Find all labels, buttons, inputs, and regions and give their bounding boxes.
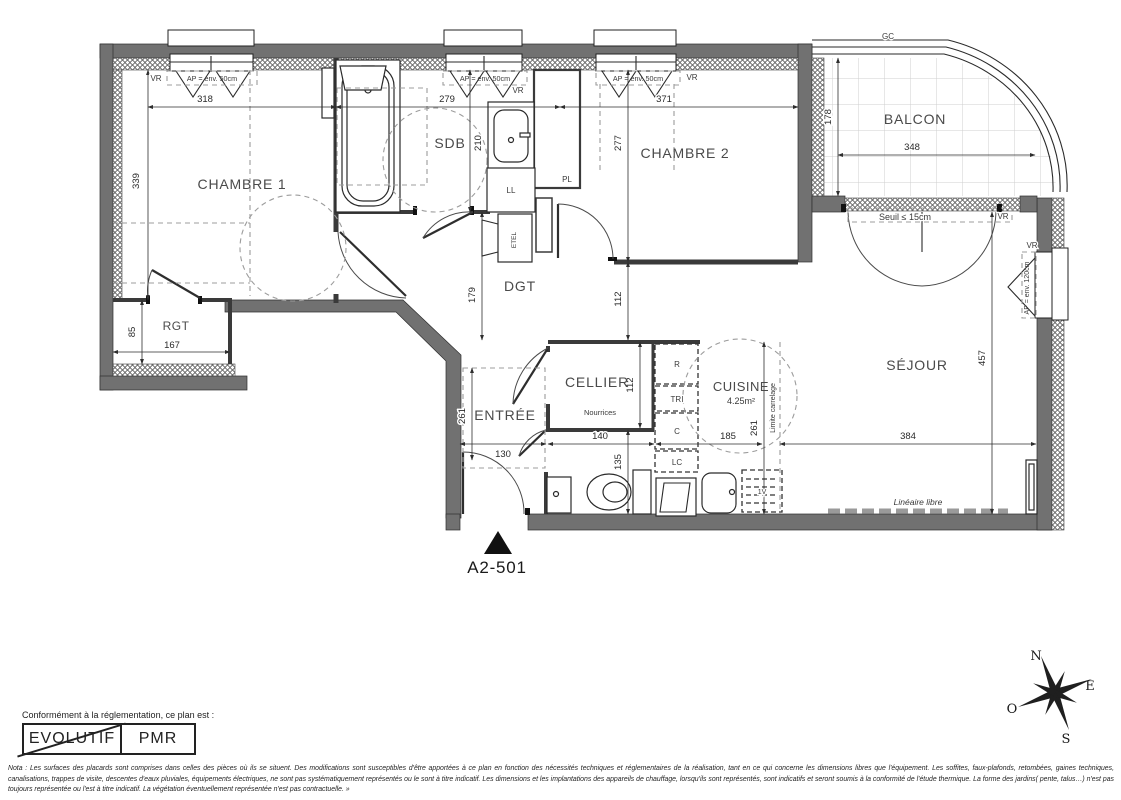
unit-tri-label: TRI xyxy=(671,395,684,404)
room-label-dgt: DGT xyxy=(504,278,536,294)
room-label-chambre2: CHAMBRE 2 xyxy=(641,145,730,161)
dim: 178 xyxy=(823,109,834,125)
bath-shelf xyxy=(340,66,386,90)
floor-plan-canvas: 318 279 371 339 210 277 178 348 179 112 … xyxy=(0,0,1121,800)
window-2-frame xyxy=(444,30,522,46)
room-label-cuisine: CUISINE xyxy=(713,379,769,394)
room-label-sdb: SDB xyxy=(434,135,465,151)
compass-star xyxy=(1018,656,1092,730)
dim: 261 xyxy=(457,408,468,424)
unit-1v-label: 1V xyxy=(758,489,767,496)
unit-r-label: R xyxy=(674,360,680,369)
legend-pmr-box: PMR xyxy=(122,723,196,755)
nourrices-label: Nourrices xyxy=(584,408,616,417)
vr-label: VR xyxy=(1026,241,1037,250)
unit-c-label: C xyxy=(674,427,680,436)
seuil-label: Seuil ≤ 15cm xyxy=(879,212,931,222)
dim: 140 xyxy=(592,431,608,442)
compass-rose: N E S O xyxy=(1007,649,1095,747)
compass-e: E xyxy=(1085,679,1095,694)
ap50-label: AP = env. 50cm xyxy=(460,74,510,83)
doors xyxy=(148,204,996,514)
compass-s: S xyxy=(1062,732,1071,747)
unit-lc-label: LC xyxy=(672,458,682,467)
nota-disclaimer: Nota : Les surfaces des placards sont co… xyxy=(8,764,1114,796)
door-jambs xyxy=(146,204,1002,515)
window-4 xyxy=(1035,252,1052,318)
cuisine-area: 4.25m² xyxy=(727,396,755,406)
unit-id: A2-501 xyxy=(467,558,527,577)
compass-o: O xyxy=(1007,702,1018,717)
dim: 185 xyxy=(720,431,736,442)
lineaire-libre-label: Linéaire libre xyxy=(894,497,943,507)
room-label-chambre1: CHAMBRE 1 xyxy=(198,176,287,192)
closet-gaine xyxy=(536,198,552,252)
dim: 339 xyxy=(131,173,142,189)
dim: 179 xyxy=(467,287,478,303)
wc-basin xyxy=(547,477,571,513)
balcony-tiles xyxy=(812,58,1058,196)
window-3-frame xyxy=(594,30,676,46)
dim: 318 xyxy=(197,94,213,105)
limite-carrelage-label: Limite carrelage xyxy=(770,383,777,433)
dim: 112 xyxy=(613,291,624,306)
vr-label: VR xyxy=(150,74,161,83)
gc-label: GC xyxy=(882,32,894,41)
dim: 348 xyxy=(904,142,920,153)
room-label-rgt: RGT xyxy=(163,319,190,333)
vr-label: VR xyxy=(686,73,697,82)
window-1-frame xyxy=(168,30,254,46)
legend-evolutif-box: EVOLUTIF xyxy=(22,723,122,755)
etel-flap xyxy=(482,220,498,256)
legend-title: Conformément à la réglementation, ce pla… xyxy=(22,710,214,720)
dim: 457 xyxy=(977,350,988,366)
pmr-circle-chambre1 xyxy=(240,195,346,301)
entrance-triangle xyxy=(484,531,512,554)
dim: 135 xyxy=(613,454,624,470)
dim: 279 xyxy=(439,94,455,105)
toilet-tank xyxy=(633,470,651,514)
ap50-label: AP = env. 50cm xyxy=(187,74,237,83)
vr-label: VR xyxy=(512,86,523,95)
legend-pmr-label: PMR xyxy=(139,730,178,748)
window-4-frame xyxy=(1052,248,1068,320)
dim: 277 xyxy=(613,135,624,151)
dim: 384 xyxy=(900,431,916,442)
dim: 167 xyxy=(164,340,180,351)
ll-label: LL xyxy=(507,186,516,195)
pl-label: PL xyxy=(562,175,572,184)
compass-n: N xyxy=(1030,649,1041,664)
room-label-entree: ENTRÉE xyxy=(474,407,536,423)
etel-label: ETEL xyxy=(511,231,518,248)
room-label-sejour: SÉJOUR xyxy=(886,357,948,373)
room-label-balcon: BALCON xyxy=(884,111,946,127)
dim: 85 xyxy=(127,327,138,338)
dim: 371 xyxy=(656,94,672,105)
dim: 210 xyxy=(473,135,484,151)
closet-pl xyxy=(534,70,580,188)
dim: 130 xyxy=(495,449,511,460)
room-label-cellier: CELLIER xyxy=(565,374,629,390)
regulation-legend: Conformément à la réglementation, ce pla… xyxy=(22,710,214,755)
floor-plan-page: 318 279 371 339 210 277 178 348 179 112 … xyxy=(0,0,1121,800)
ap120-label: AP = env. 120cm xyxy=(1024,261,1031,314)
ap50-label: AP = env. 50cm xyxy=(613,74,663,83)
vr-label: VR xyxy=(997,212,1008,221)
sdb-column xyxy=(322,68,334,118)
dim: 261 xyxy=(749,420,760,436)
